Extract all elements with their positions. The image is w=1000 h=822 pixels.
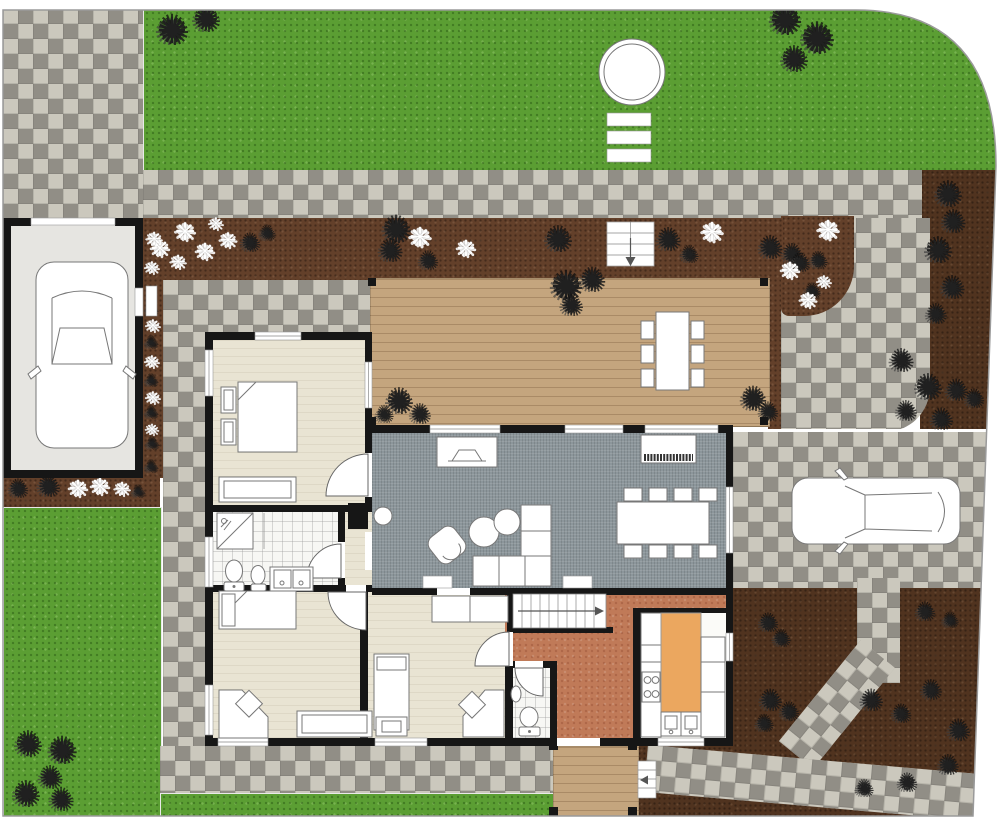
room-living-dining — [372, 425, 733, 595]
deck — [370, 278, 770, 427]
lawn-bottom-strip — [160, 793, 559, 818]
room-bedroom-1 — [205, 332, 372, 512]
porch — [553, 746, 639, 818]
shrub-plant: ✺ — [976, 735, 991, 753]
walkway-bottom — [160, 746, 557, 793]
mulch-strip-garage-side — [143, 218, 163, 478]
garage-floor — [3, 218, 143, 478]
paver-plaza-top-left — [3, 9, 143, 218]
room-kitchen — [637, 608, 733, 746]
walkway-top — [143, 170, 922, 218]
driveway-edge-line — [733, 429, 997, 432]
walkway-left — [163, 332, 205, 746]
room-wc — [505, 661, 557, 738]
lot: ✺✺✺✺✺✺✺✺✺✺✺✺✺✺✺✺✺✺✺✺✺✺✺✺✺✺✺✺✺✺✺✺✺✺✺✺✺✺✺✺… — [0, 0, 1000, 822]
site-plan-canvas: ✺✺✺✺✺✺✺✺✺✺✺✺✺✺✺✺✺✺✺✺✺✺✺✺✺✺✺✺✺✺✺✺✺✺✺✺✺✺✺✺… — [0, 0, 1000, 822]
mulch-bed-top — [143, 218, 783, 280]
mulch-strip-below-garage — [3, 478, 160, 507]
room-bedroom-3 — [360, 588, 513, 746]
courtyard-pavers — [163, 280, 370, 332]
room-bedroom-2 — [205, 585, 368, 746]
room-bathroom — [212, 505, 345, 592]
lawn-left — [3, 507, 162, 818]
room-hallway — [340, 505, 372, 592]
driveway — [733, 432, 997, 588]
mulch-right-band — [920, 170, 997, 440]
lawn-top — [143, 9, 999, 172]
